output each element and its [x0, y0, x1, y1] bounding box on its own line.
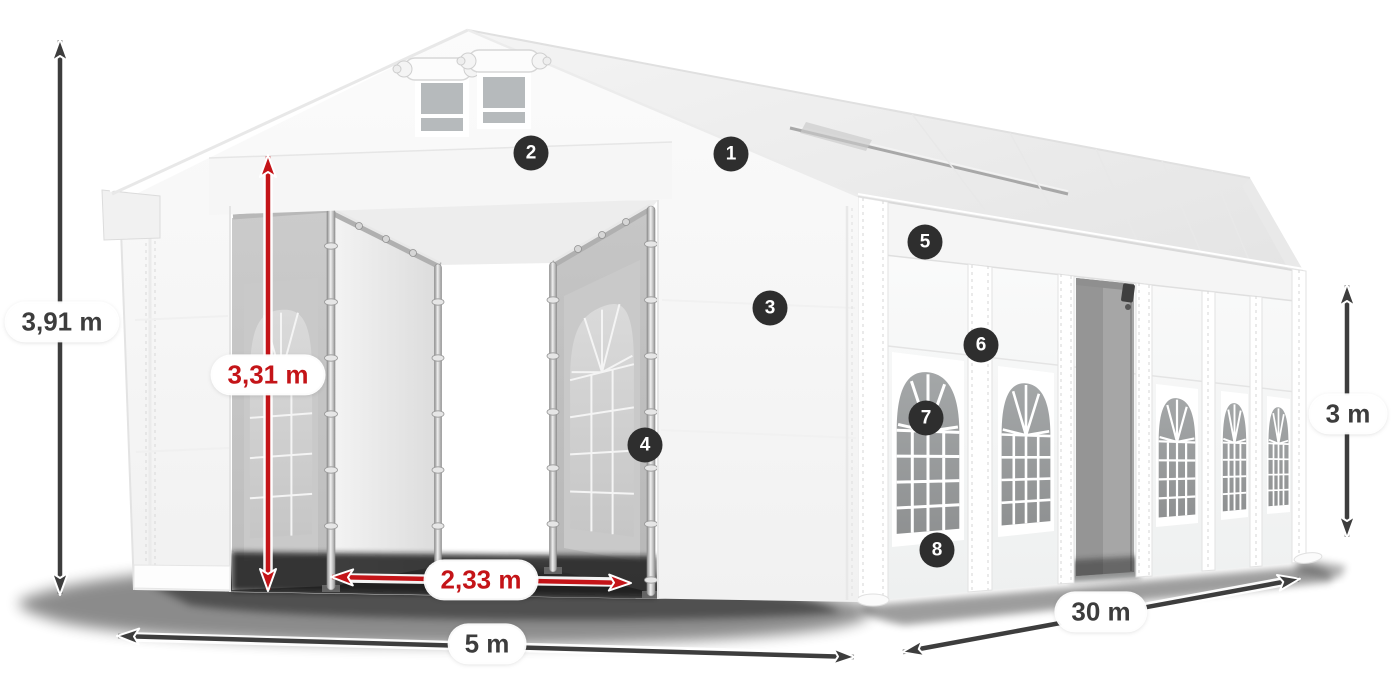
eave-corner	[102, 190, 160, 240]
door-leaf-windows	[244, 260, 640, 562]
tent-dimension-diagram: 3,91 m 3,31 m 2,33 m 5 m 30 m 3 m 1 2 3 …	[0, 0, 1400, 700]
marker-7[interactable]: 7	[909, 401, 944, 436]
dimension-label-total-height: 3,91 m	[7, 303, 118, 340]
marker-8[interactable]: 8	[920, 533, 955, 568]
dimension-label-side-height: 3 m	[1311, 395, 1386, 432]
marker-6[interactable]: 6	[964, 328, 999, 363]
marker-5[interactable]: 5	[908, 225, 943, 260]
marker-1[interactable]: 1	[714, 137, 749, 172]
marker-2[interactable]: 2	[514, 136, 549, 171]
tent-illustration	[0, 0, 1400, 700]
dimension-label-length: 30 m	[1056, 593, 1145, 630]
marker-3[interactable]: 3	[753, 291, 788, 326]
open-door-leaf-back	[334, 215, 438, 586]
dimension-label-entrance-width: 2,33 m	[426, 561, 537, 598]
front-interior	[230, 200, 660, 598]
door-latch-hardware	[1121, 283, 1135, 302]
marker-4[interactable]: 4	[628, 428, 663, 463]
side-door	[1070, 278, 1140, 582]
dimension-label-entrance-height: 3,31 m	[213, 356, 324, 393]
dimension-label-front-width: 5 m	[450, 625, 525, 662]
